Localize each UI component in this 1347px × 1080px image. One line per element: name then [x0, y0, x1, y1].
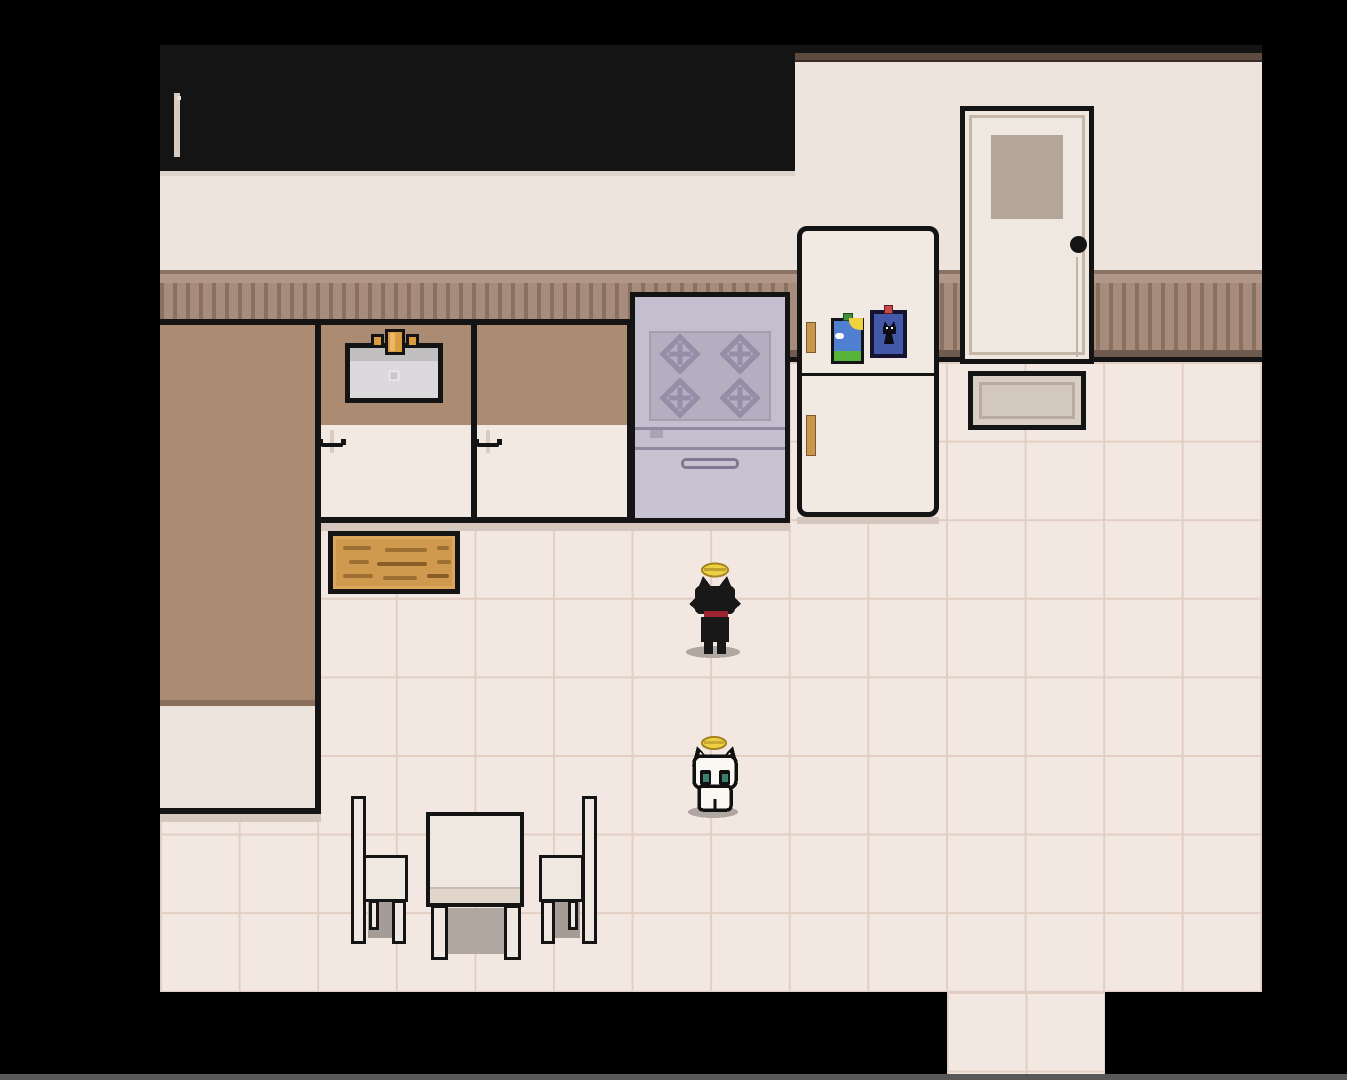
drawer-handle-icon — [321, 443, 343, 447]
chair-right-front-leg — [541, 900, 555, 944]
left-counter-front — [160, 706, 315, 808]
stove-knob-icon[interactable] — [650, 430, 663, 438]
game-viewport — [0, 0, 1347, 1080]
cooktop — [649, 331, 771, 421]
landscape-photo-magnet[interactable] — [831, 318, 864, 364]
sink-drain-icon — [389, 370, 400, 381]
counter-shadow — [315, 523, 790, 531]
fridge-handle-bottom[interactable] — [806, 415, 816, 456]
grass-strip — [834, 351, 861, 361]
faucet[interactable] — [373, 329, 417, 361]
chair-right-back[interactable] — [582, 796, 597, 944]
table-shadow — [438, 908, 514, 954]
dining-table[interactable] — [426, 812, 524, 907]
white-cat-character[interactable] — [688, 732, 742, 820]
table-front-edge — [430, 887, 520, 903]
screen-bottom-line — [0, 1074, 1347, 1080]
black-cat-character[interactable] — [682, 556, 746, 660]
cat-silhouette-icon — [877, 316, 901, 348]
chair-left-rear-leg — [369, 900, 379, 930]
door-seam — [1076, 257, 1078, 357]
faucet-knob-left — [371, 334, 384, 348]
table-leg-left — [431, 905, 448, 960]
doormat — [968, 371, 1086, 430]
sink-counter[interactable] — [315, 319, 477, 523]
chair-right-seat[interactable] — [539, 855, 584, 902]
magnet-clip-icon — [884, 305, 893, 314]
drawer-handle-icon — [477, 443, 499, 447]
drawer[interactable] — [486, 430, 490, 453]
drawer[interactable] — [330, 430, 334, 453]
cutting-board[interactable] — [328, 531, 460, 594]
chair-left-front-leg — [392, 900, 406, 944]
door-windows — [991, 135, 1063, 219]
cloud-icon — [835, 333, 844, 339]
burners-icon — [651, 333, 769, 419]
back-door[interactable] — [960, 106, 1094, 364]
refrigerator[interactable] — [797, 226, 939, 517]
cabinet-door-right[interactable] — [177, 96, 181, 100]
wainscot-light-rail — [160, 274, 1262, 283]
cabinet-shadow — [160, 171, 795, 176]
chair-left-seat[interactable] — [363, 855, 408, 902]
doormat-inner — [979, 382, 1075, 419]
table-leg-right — [504, 905, 521, 960]
door-knob-icon[interactable] — [1070, 236, 1087, 253]
sun-icon — [849, 318, 863, 330]
cabinet-handle-icon — [170, 73, 174, 89]
fridge-door-divider — [802, 373, 934, 376]
drawer-counter[interactable] — [471, 319, 633, 523]
chair-right-rear-leg — [568, 900, 578, 930]
oven-door[interactable] — [635, 447, 785, 518]
faucet-knob-right — [406, 334, 419, 348]
black-cat-photo-magnet[interactable] — [870, 310, 907, 358]
left-counter-shadow — [160, 814, 321, 822]
sink-drawer-stack — [321, 425, 471, 517]
cabinet-handle-icon — [184, 73, 188, 89]
wall-top-edge — [795, 45, 1262, 53]
stove-knobs — [635, 427, 785, 444]
tiled-floor-doorway-extension[interactable] — [947, 992, 1105, 1080]
faucet-spout — [385, 329, 405, 355]
crown-molding — [795, 53, 1262, 62]
left-counter[interactable] — [160, 319, 321, 814]
drawer-stack — [477, 425, 627, 517]
oven-handle-icon — [681, 458, 739, 469]
cabinet-doors — [174, 93, 180, 157]
fridge-shadow — [797, 517, 939, 524]
upper-cabinets — [160, 45, 795, 171]
fridge-handle-top[interactable] — [806, 322, 816, 353]
stove[interactable] — [630, 292, 790, 523]
